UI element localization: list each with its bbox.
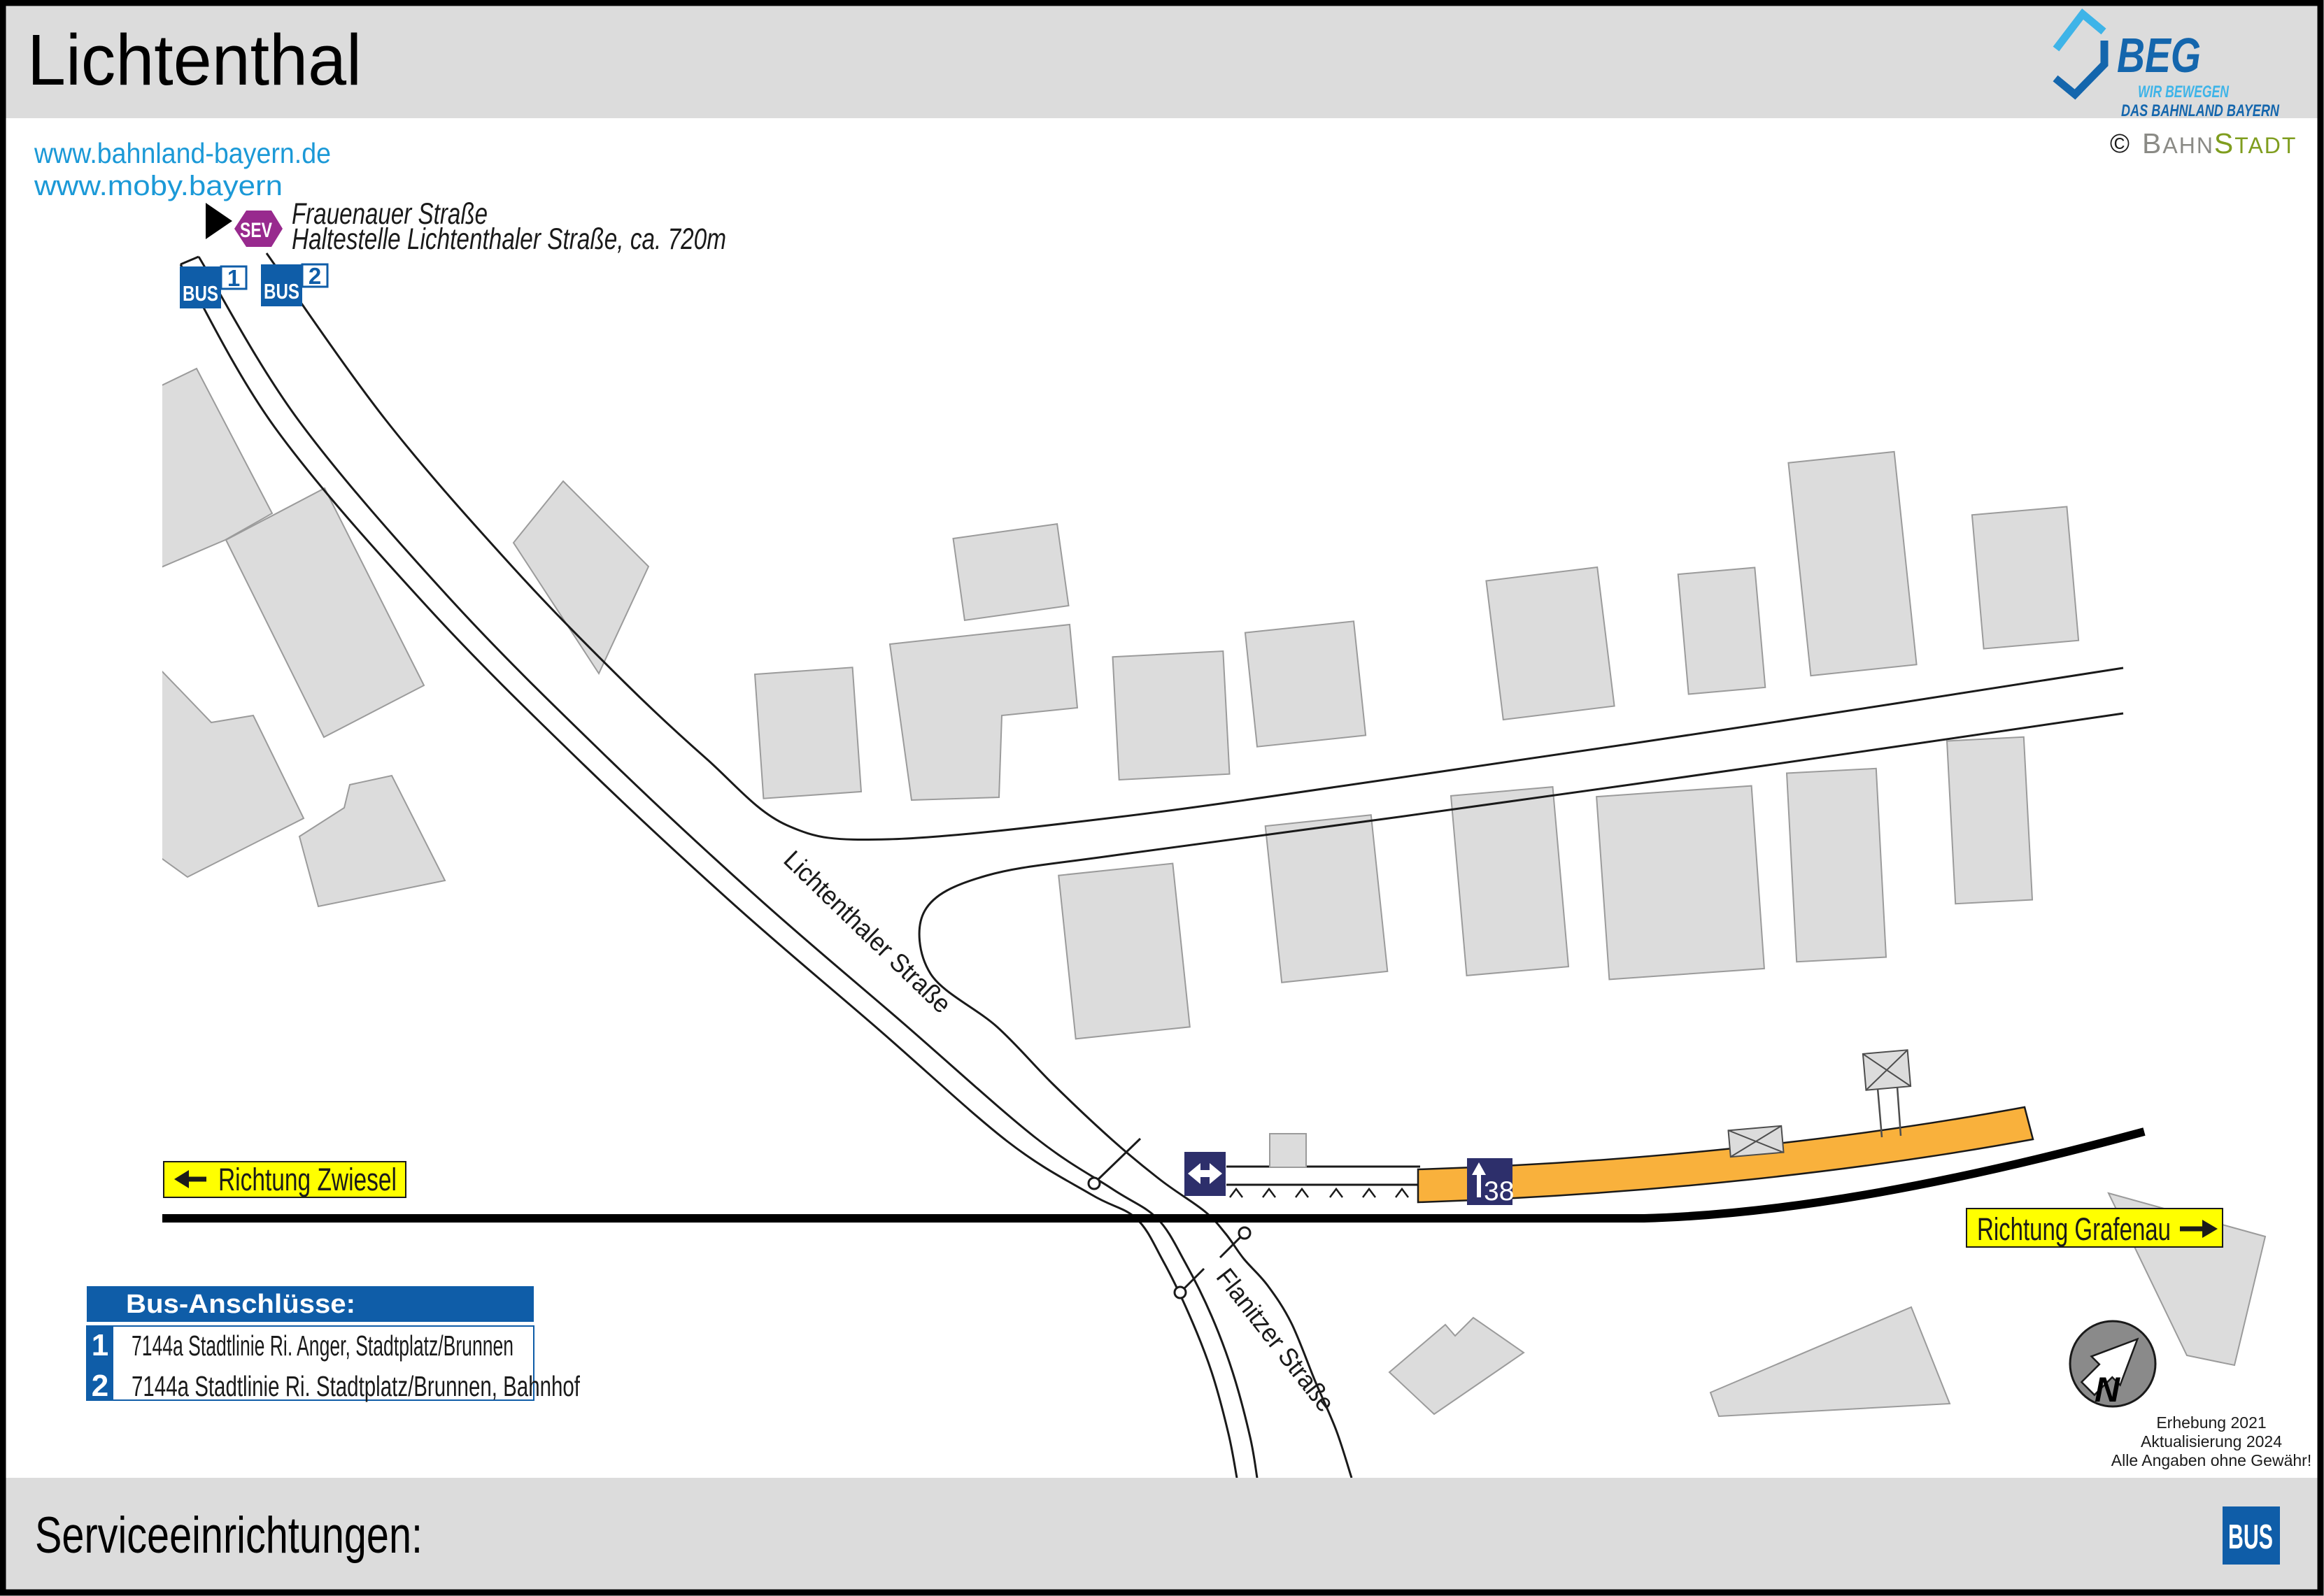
svg-text:SEV: SEV <box>240 219 272 242</box>
svg-text:WIR BEWEGEN: WIR BEWEGEN <box>2138 83 2229 101</box>
svg-text:N: N <box>2095 1370 2120 1409</box>
svg-text:BUS: BUS <box>183 281 218 306</box>
svg-text:BUS: BUS <box>2228 1518 2273 1556</box>
svg-text:Haltestelle Lichtenthaler Stra: Haltestelle Lichtenthaler Straße, ca. 72… <box>292 222 726 256</box>
svg-text:Alle Angaben ohne Gewähr!: Alle Angaben ohne Gewähr! <box>2111 1451 2311 1469</box>
svg-text:BEG: BEG <box>2117 28 2201 83</box>
svg-text:Erhebung 2021: Erhebung 2021 <box>2156 1413 2266 1432</box>
svg-text:Lichtenthal: Lichtenthal <box>27 20 362 100</box>
svg-text:1: 1 <box>227 265 240 291</box>
svg-text:7144a Stadtlinie Ri. Anger, St: 7144a Stadtlinie Ri. Anger, Stadtplatz/B… <box>132 1330 513 1362</box>
svg-text:1: 1 <box>92 1328 108 1362</box>
svg-text:www.moby.bayern: www.moby.bayern <box>34 171 283 201</box>
svg-text:2: 2 <box>92 1369 108 1403</box>
svg-text:2: 2 <box>309 263 321 289</box>
svg-text:Richtung Grafenau: Richtung Grafenau <box>1977 1211 2171 1247</box>
svg-text:Serviceeinrichtungen:: Serviceeinrichtungen: <box>35 1507 423 1564</box>
svg-text:7144a Stadtlinie Ri. Stadtplat: 7144a Stadtlinie Ri. Stadtplatz/Brunnen,… <box>132 1370 580 1402</box>
svg-text:38: 38 <box>1484 1176 1514 1206</box>
svg-text:Bus-Anschlüsse:: Bus-Anschlüsse: <box>126 1290 355 1319</box>
svg-text:www.bahnland-bayern.de: www.bahnland-bayern.de <box>34 137 331 169</box>
svg-text:DAS BAHNLAND BAYERN: DAS BAHNLAND BAYERN <box>2121 101 2279 120</box>
svg-text:Richtung Zwiesel: Richtung Zwiesel <box>218 1162 397 1197</box>
svg-text:BUS: BUS <box>264 279 299 304</box>
svg-text:©: © <box>2110 129 2130 159</box>
svg-text:Aktualisierung 2024: Aktualisierung 2024 <box>2141 1432 2282 1451</box>
